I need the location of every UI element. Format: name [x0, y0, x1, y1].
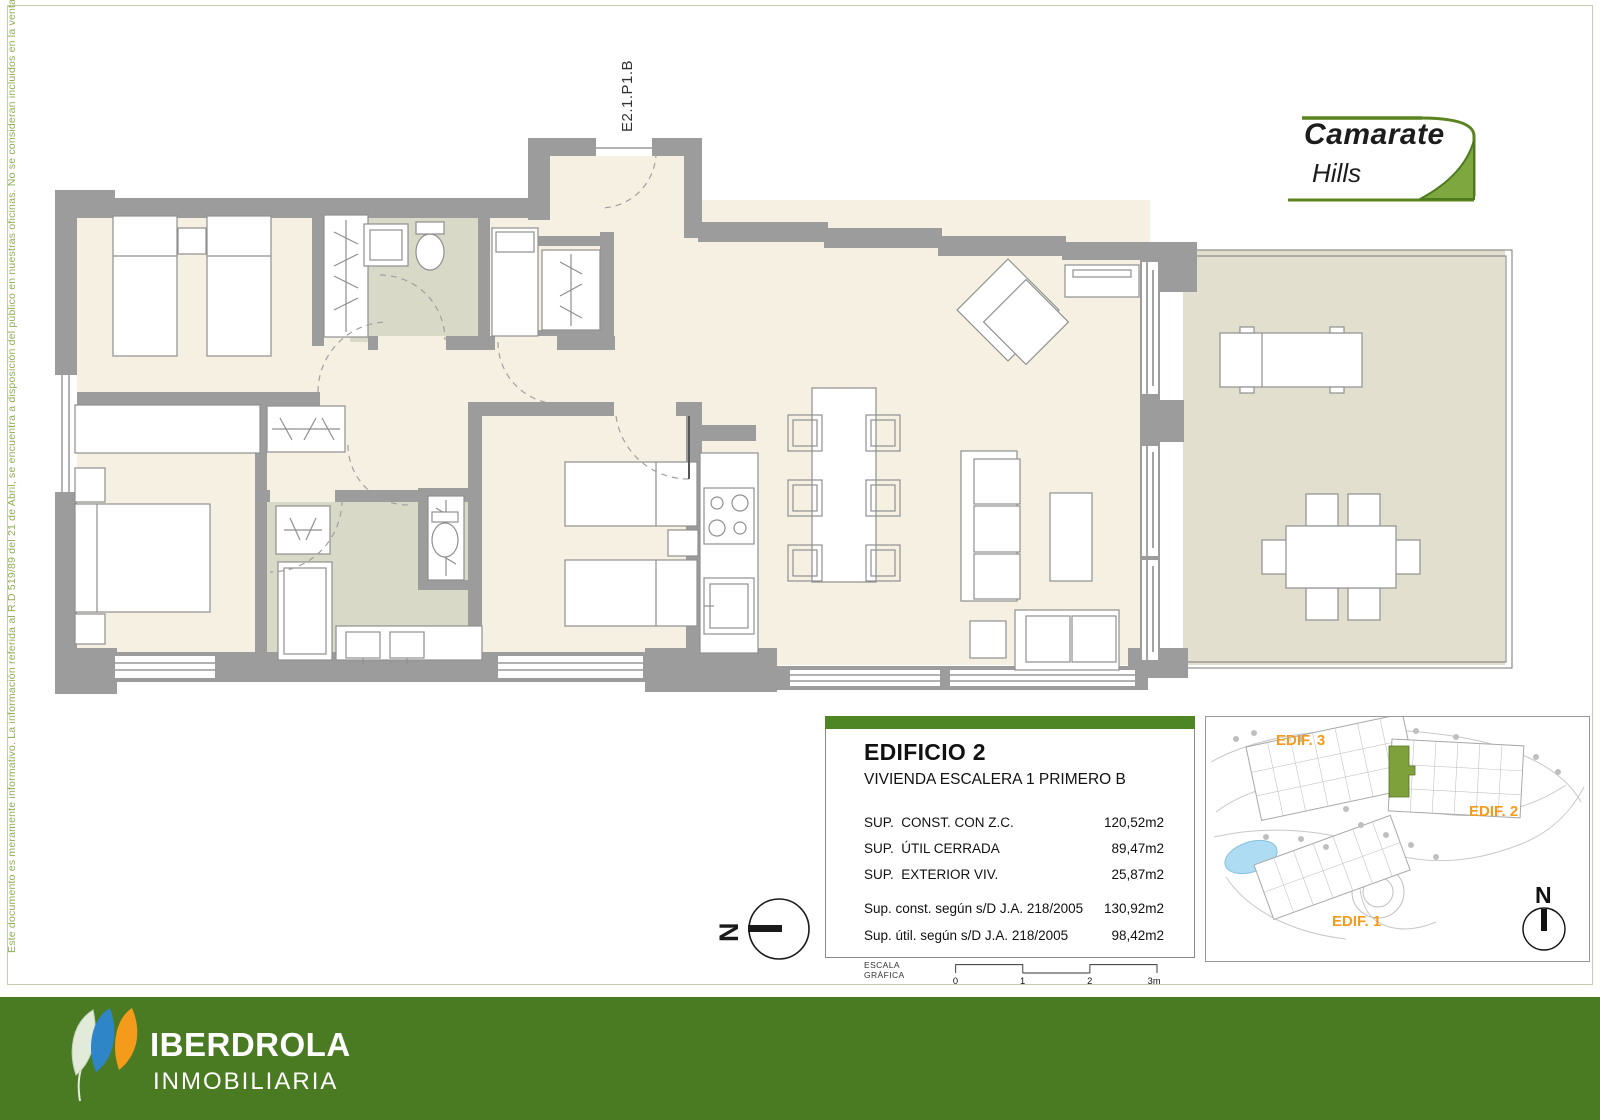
unit-code-label: E2.1.P1.B — [619, 60, 636, 132]
bathroom1-fixtures — [364, 222, 444, 270]
svg-text:2: 2 — [1088, 976, 1093, 986]
edif1-label: EDIF. 1 — [1332, 913, 1381, 930]
footer-brand: IBERDROLA — [150, 1026, 351, 1064]
svg-text:3m: 3m — [1148, 976, 1161, 986]
brand-name: Camarate — [1304, 118, 1445, 152]
info-box-header-bar — [825, 716, 1195, 729]
kitchen-furniture — [700, 453, 758, 653]
wardrobe1 — [324, 215, 368, 337]
area-value: 130,92m2 — [1104, 901, 1164, 916]
building-title: EDIFICIO 2 — [864, 739, 1164, 766]
area-row: SUP. ÚTIL CERRADA 89,47m2 — [864, 835, 1164, 861]
terrace-floor — [1183, 250, 1505, 665]
svg-text:1: 1 — [1020, 976, 1025, 986]
scale-label: ESCALA GRÁFICA — [864, 960, 937, 980]
unit-subtitle: VIVIENDA ESCALERA 1 PRIMERO B — [864, 771, 1164, 789]
unit-info-box: EDIFICIO 2 VIVIENDA ESCALERA 1 PRIMERO B… — [825, 716, 1195, 958]
edif3-label: EDIF. 3 — [1276, 732, 1325, 749]
area-value: 89,47m2 — [1111, 841, 1164, 856]
graphic-scale: ESCALA GRÁFICA 0 1 2 3m — [864, 959, 1164, 987]
plan-north-compass: N — [714, 899, 809, 959]
site-plan-box: EDIF. 3 EDIF. 2 EDIF. 1 N — [1205, 716, 1590, 962]
area-row: Sup. const. según s/D J.A. 218/2005 130,… — [864, 895, 1164, 922]
scale-bar: 0 1 2 3m — [951, 959, 1164, 987]
footer-division: INMOBILIARIA — [153, 1068, 338, 1096]
site-north-label: N — [1535, 882, 1552, 908]
site-plan-drawing: EDIF. 3 EDIF. 2 EDIF. 1 N — [1206, 717, 1589, 961]
area-value: 120,52m2 — [1104, 815, 1164, 830]
edif2-label: EDIF. 2 — [1469, 803, 1518, 820]
area-row: SUP. CONST. CON Z.C. 120,52m2 — [864, 809, 1164, 835]
area-row: SUP. EXTERIOR VIV. 25,87m2 — [864, 861, 1164, 887]
closet-hall — [267, 406, 345, 452]
iberdrola-logo-icon — [66, 1005, 158, 1105]
site-north-compass: N — [1523, 882, 1565, 950]
plan-north-label: N — [714, 923, 744, 943]
area-value: 98,42m2 — [1111, 928, 1164, 943]
area-value: 25,87m2 — [1111, 867, 1164, 882]
svg-text:0: 0 — [953, 976, 958, 986]
orange-drop — [115, 1008, 137, 1070]
leaf-stem — [79, 1069, 81, 1101]
area-row: Sup. útil. según s/D J.A. 218/2005 98,42… — [864, 922, 1164, 949]
brand-name-2: Hills — [1312, 158, 1361, 189]
